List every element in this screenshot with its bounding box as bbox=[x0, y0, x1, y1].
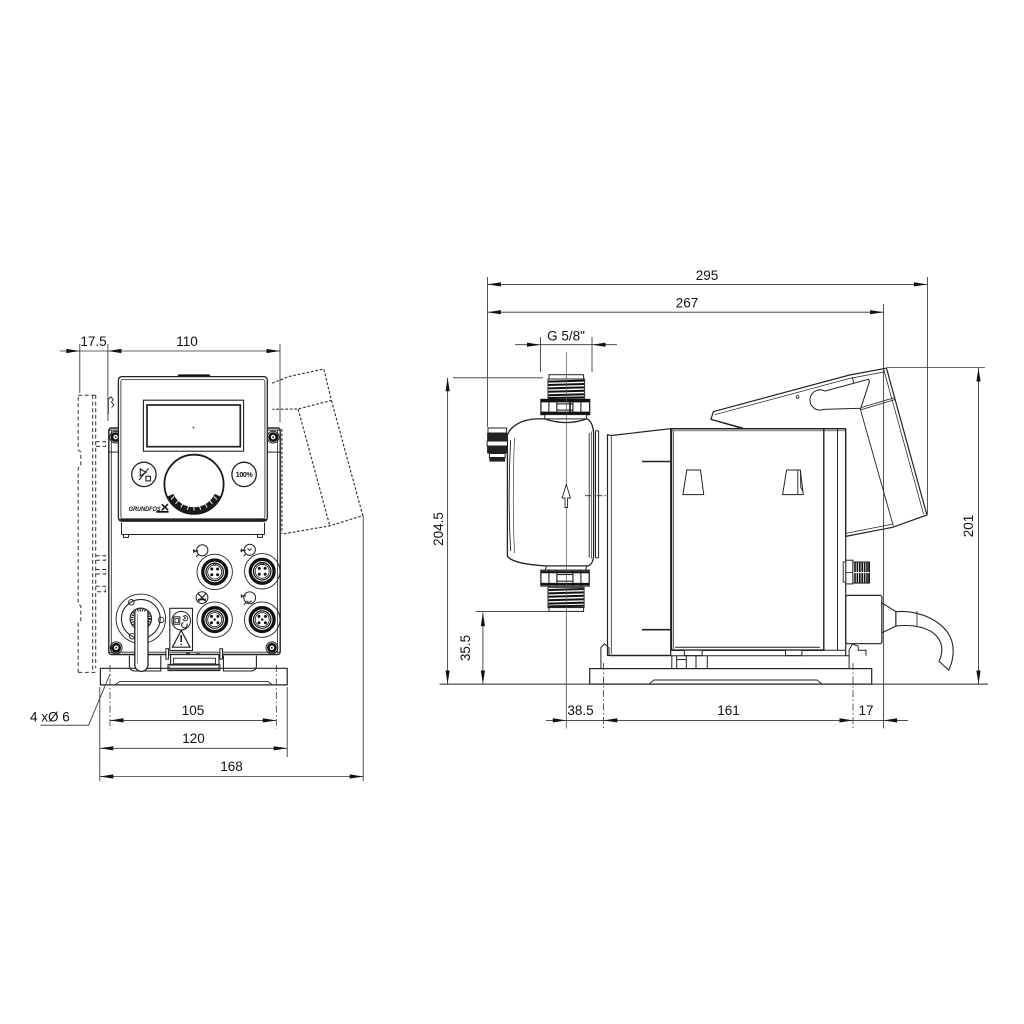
svg-text:100%: 100% bbox=[236, 472, 254, 479]
svg-text:295: 295 bbox=[696, 268, 719, 283]
svg-text:G 5/8": G 5/8" bbox=[547, 329, 585, 344]
svg-text:267: 267 bbox=[676, 295, 699, 310]
svg-text:17: 17 bbox=[858, 703, 873, 718]
svg-text:201: 201 bbox=[961, 515, 976, 538]
svg-text:204.5: 204.5 bbox=[431, 512, 446, 546]
svg-text:17.5: 17.5 bbox=[80, 334, 106, 349]
svg-text:105: 105 bbox=[182, 703, 205, 718]
svg-text:161: 161 bbox=[717, 703, 740, 718]
svg-text:168: 168 bbox=[220, 759, 243, 774]
svg-text:110: 110 bbox=[176, 334, 198, 349]
svg-text:38.5: 38.5 bbox=[567, 703, 593, 718]
svg-text:4 xØ 6: 4 xØ 6 bbox=[30, 710, 70, 725]
svg-text:35.5: 35.5 bbox=[458, 635, 473, 661]
svg-text:120: 120 bbox=[182, 731, 205, 746]
